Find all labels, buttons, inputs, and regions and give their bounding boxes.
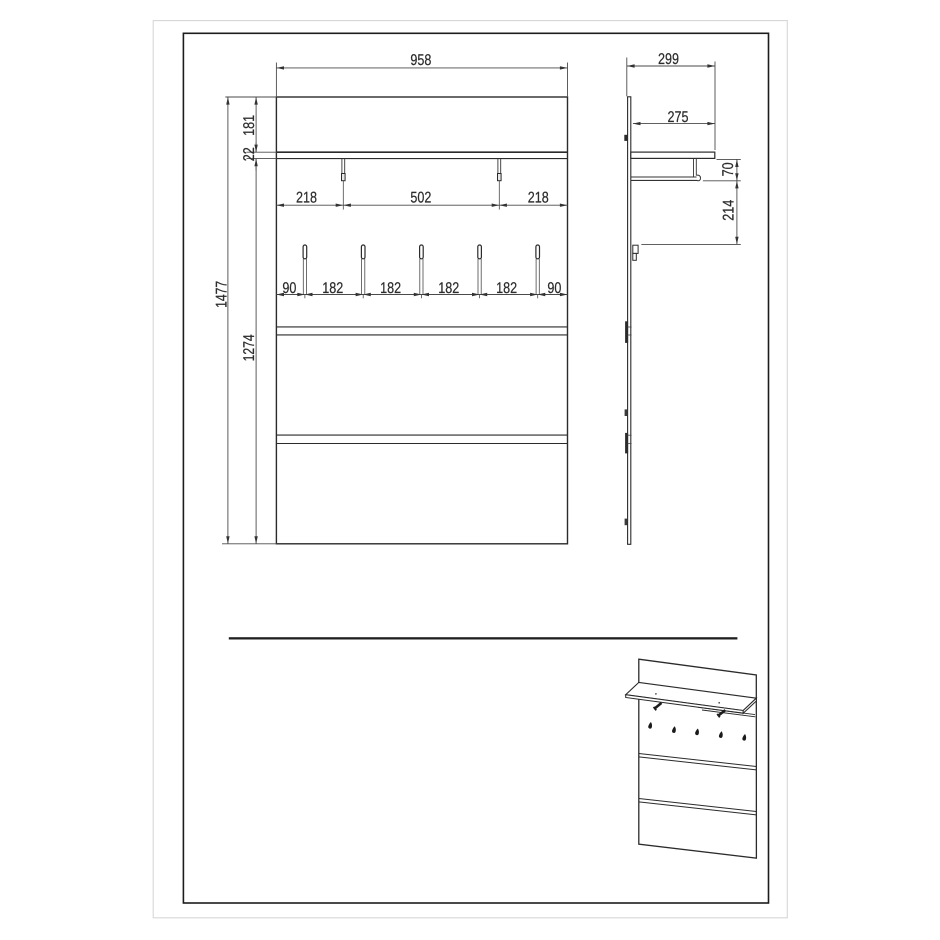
svg-text:1274: 1274 xyxy=(241,334,258,361)
svg-text:958: 958 xyxy=(410,52,431,69)
svg-text:90: 90 xyxy=(547,280,561,297)
svg-text:182: 182 xyxy=(380,280,401,297)
svg-text:275: 275 xyxy=(668,109,689,126)
svg-text:70: 70 xyxy=(720,162,737,176)
svg-text:502: 502 xyxy=(410,190,431,207)
svg-text:182: 182 xyxy=(438,280,459,297)
svg-text:182: 182 xyxy=(322,280,343,297)
svg-text:218: 218 xyxy=(528,190,549,207)
svg-text:90: 90 xyxy=(282,280,296,297)
svg-text:299: 299 xyxy=(658,51,679,68)
svg-text:1477: 1477 xyxy=(214,281,231,308)
svg-text:218: 218 xyxy=(296,190,317,207)
svg-text:214: 214 xyxy=(721,200,738,221)
svg-text:181: 181 xyxy=(241,115,258,136)
svg-text:182: 182 xyxy=(496,280,517,297)
